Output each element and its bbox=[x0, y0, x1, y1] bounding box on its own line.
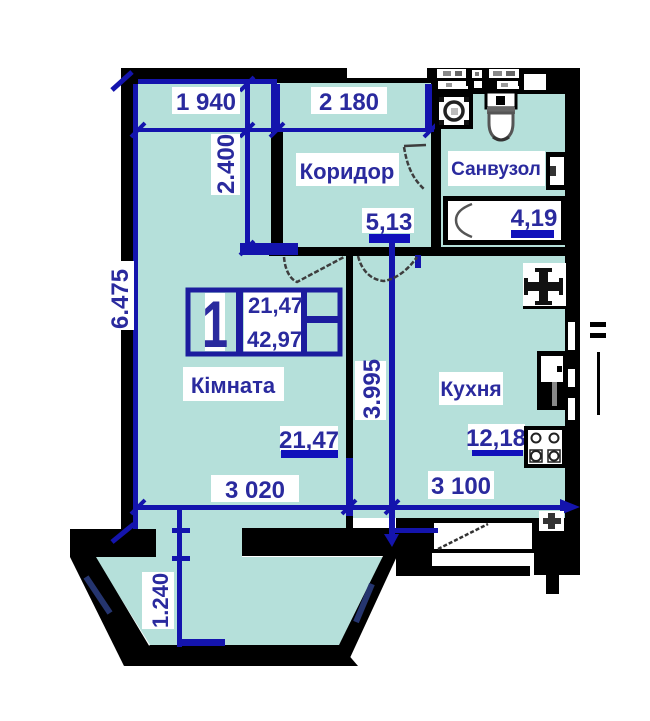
svg-text:3 020: 3 020 bbox=[225, 477, 285, 504]
svg-text:21,47: 21,47 bbox=[279, 427, 339, 454]
svg-text:1.240: 1.240 bbox=[148, 573, 173, 628]
svg-text:42,97: 42,97 bbox=[247, 327, 302, 352]
svg-text:Кімната: Кімната bbox=[191, 373, 276, 398]
svg-text:4,19: 4,19 bbox=[511, 205, 558, 232]
svg-text:21,47: 21,47 bbox=[248, 293, 303, 318]
svg-text:1 940: 1 940 bbox=[176, 89, 236, 116]
svg-text:Коридор: Коридор bbox=[300, 159, 395, 184]
svg-text:Кухня: Кухня bbox=[440, 378, 501, 401]
svg-text:1: 1 bbox=[202, 287, 228, 361]
svg-text:3.995: 3.995 bbox=[359, 359, 386, 419]
svg-text:2.400: 2.400 bbox=[213, 134, 240, 194]
svg-text:5,13: 5,13 bbox=[366, 209, 413, 236]
svg-text:12,18: 12,18 bbox=[466, 425, 526, 452]
svg-text:2 180: 2 180 bbox=[319, 89, 379, 116]
svg-text:3 100: 3 100 bbox=[431, 473, 491, 500]
svg-text:6.475: 6.475 bbox=[107, 269, 134, 329]
svg-text:Санвузол: Санвузол bbox=[451, 159, 541, 180]
